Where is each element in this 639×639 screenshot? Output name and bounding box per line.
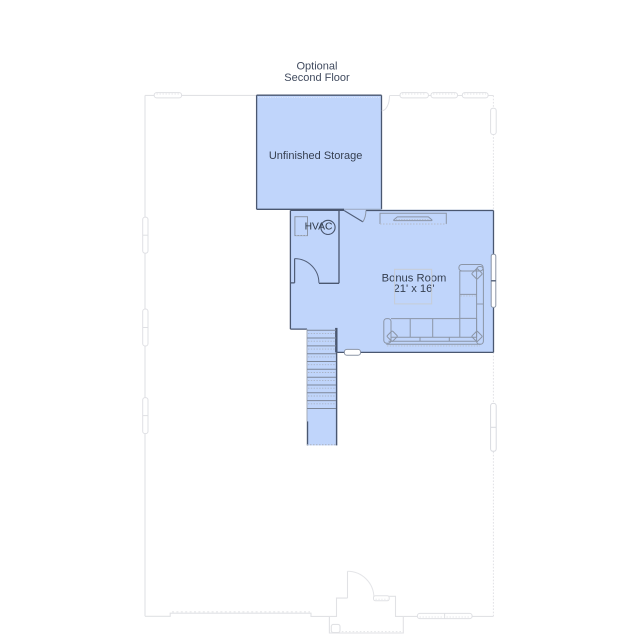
svg-text:21' x 16': 21' x 16' — [394, 283, 435, 295]
svg-text:HVAC: HVAC — [305, 221, 333, 232]
svg-text:Optional: Optional — [297, 61, 338, 73]
svg-text:Second Floor: Second Floor — [284, 72, 350, 84]
svg-text:Unfinished Storage: Unfinished Storage — [269, 150, 363, 162]
